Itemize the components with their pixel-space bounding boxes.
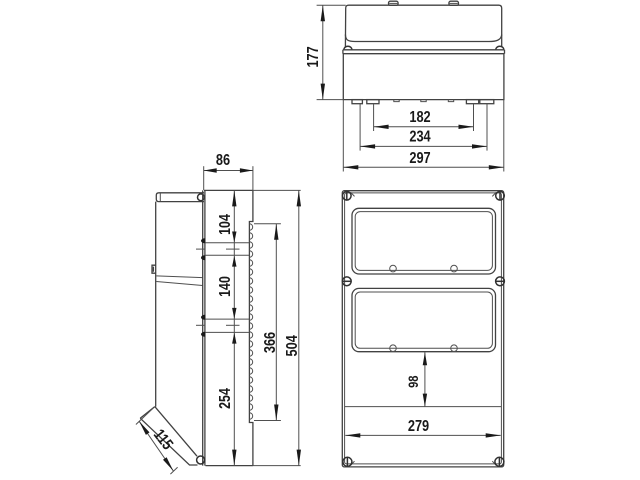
svg-text:98: 98 (406, 375, 421, 387)
svg-text:182: 182 (409, 109, 430, 127)
svg-text:297: 297 (409, 150, 430, 168)
svg-text:234: 234 (409, 128, 430, 146)
svg-text:504: 504 (284, 335, 302, 356)
svg-text:366: 366 (262, 332, 280, 353)
svg-text:140: 140 (216, 276, 234, 297)
svg-text:254: 254 (216, 388, 234, 409)
svg-text:104: 104 (216, 214, 234, 235)
svg-text:86: 86 (216, 152, 230, 170)
svg-text:177: 177 (305, 46, 323, 67)
svg-text:279: 279 (408, 418, 429, 436)
